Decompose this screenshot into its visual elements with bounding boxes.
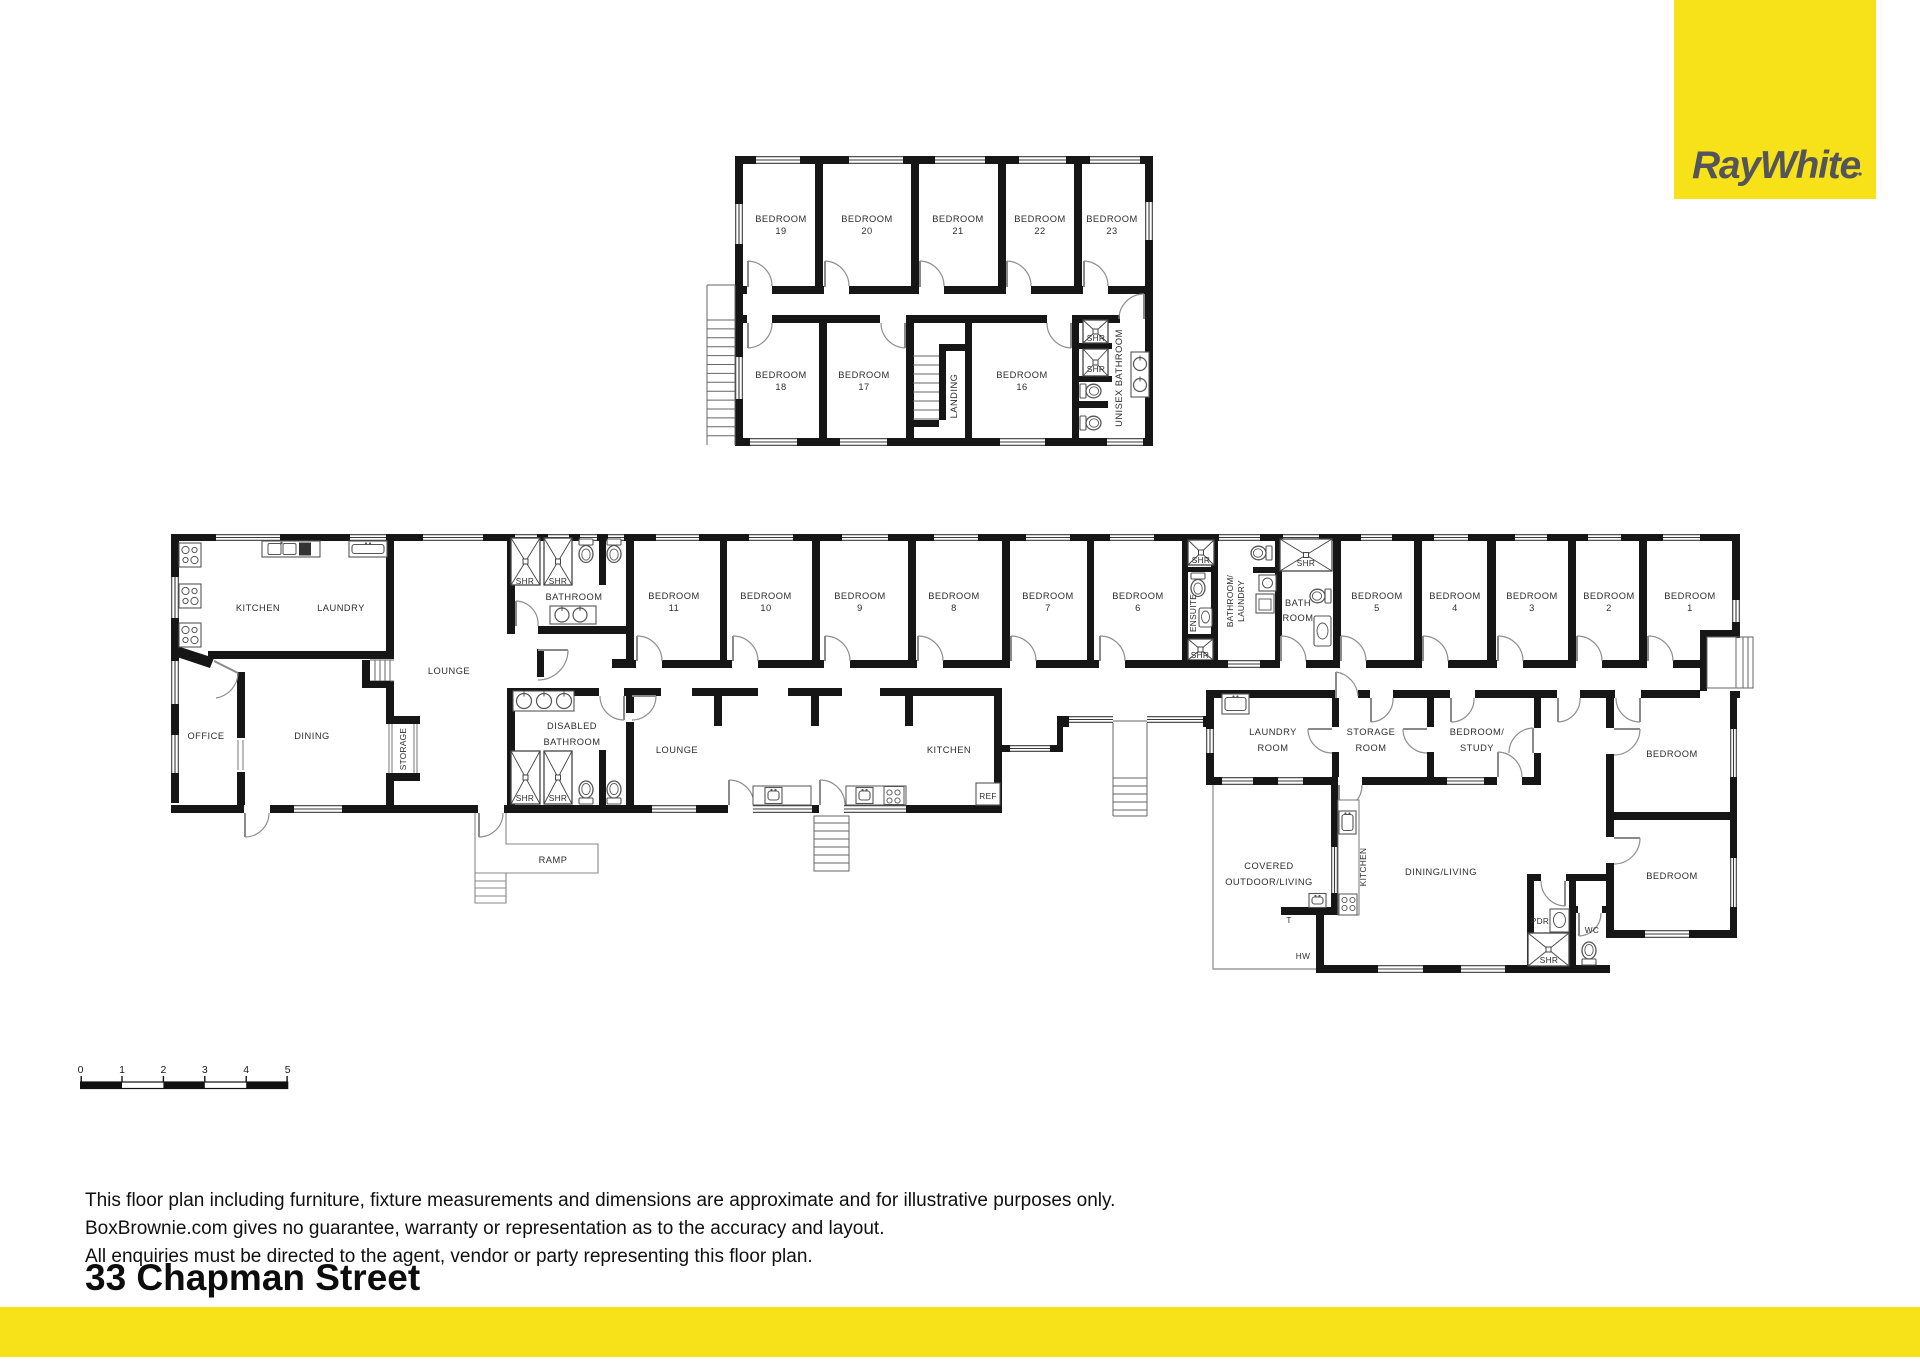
svg-text:18: 18 xyxy=(775,382,786,392)
svg-text:UNISEX BATHROOM: UNISEX BATHROOM xyxy=(1114,329,1124,427)
svg-text:BATHROOM/: BATHROOM/ xyxy=(1225,574,1235,627)
svg-text:SHR: SHR xyxy=(549,793,567,803)
svg-text:5: 5 xyxy=(285,1064,291,1076)
svg-text:KITCHEN: KITCHEN xyxy=(236,603,280,613)
svg-text:LOUNGE: LOUNGE xyxy=(428,666,470,676)
svg-text:21: 21 xyxy=(952,226,963,236)
svg-text:DINING/LIVING: DINING/LIVING xyxy=(1405,867,1477,877)
svg-text:WC: WC xyxy=(1585,925,1599,935)
svg-text:BEDROOM: BEDROOM xyxy=(1664,591,1716,601)
svg-text:SHR: SHR xyxy=(1191,650,1209,660)
svg-text:LAUNDRY: LAUNDRY xyxy=(317,603,365,613)
svg-text:ENSUITE: ENSUITE xyxy=(1188,594,1198,632)
svg-text:HW: HW xyxy=(1296,951,1310,961)
svg-text:BEDROOM: BEDROOM xyxy=(1086,214,1138,224)
svg-text:BEDROOM: BEDROOM xyxy=(1646,871,1698,881)
svg-text:SHR: SHR xyxy=(516,793,534,803)
svg-text:10: 10 xyxy=(760,603,771,613)
svg-text:RayWhite: RayWhite xyxy=(1692,144,1861,187)
svg-text:LOUNGE: LOUNGE xyxy=(656,745,698,755)
svg-text:23: 23 xyxy=(1106,226,1117,236)
svg-text:BEDROOM: BEDROOM xyxy=(834,591,886,601)
svg-text:SHR: SHR xyxy=(1087,333,1105,343)
svg-text:BEDROOM: BEDROOM xyxy=(1429,591,1481,601)
svg-text:BEDROOM: BEDROOM xyxy=(1351,591,1403,601)
svg-text:OFFICE: OFFICE xyxy=(187,731,224,741)
svg-text:SHR: SHR xyxy=(1192,555,1210,565)
svg-text:DISABLED: DISABLED xyxy=(547,721,597,731)
svg-text:SHR: SHR xyxy=(1087,364,1105,374)
svg-text:20: 20 xyxy=(861,226,872,236)
svg-text:SHR: SHR xyxy=(1540,955,1558,965)
svg-text:BEDROOM: BEDROOM xyxy=(1583,591,1635,601)
svg-text:ROOM: ROOM xyxy=(1356,743,1387,753)
svg-text:BEDROOM: BEDROOM xyxy=(996,370,1048,380)
svg-text:SHR: SHR xyxy=(1297,558,1315,568)
svg-text:RAMP: RAMP xyxy=(539,855,568,865)
svg-text:DINING: DINING xyxy=(294,731,330,741)
svg-text:ROOM: ROOM xyxy=(1283,613,1314,623)
svg-text:3: 3 xyxy=(1529,603,1535,613)
svg-text:BEDROOM: BEDROOM xyxy=(740,591,792,601)
svg-text:BEDROOM: BEDROOM xyxy=(755,370,807,380)
svg-text:PDR: PDR xyxy=(1531,916,1549,926)
svg-text:9: 9 xyxy=(857,603,863,613)
svg-text:LANDING: LANDING xyxy=(949,374,959,419)
svg-text:STORAGE: STORAGE xyxy=(398,728,408,771)
svg-text:BEDROOM: BEDROOM xyxy=(1014,214,1066,224)
svg-text:5: 5 xyxy=(1374,603,1380,613)
svg-text:3: 3 xyxy=(202,1064,208,1076)
svg-text:REF: REF xyxy=(979,791,997,801)
svg-text:BEDROOM: BEDROOM xyxy=(648,591,700,601)
svg-text:7: 7 xyxy=(1045,603,1051,613)
svg-text:LAUNDRY: LAUNDRY xyxy=(1249,727,1297,737)
svg-text:BoxBrownie.com gives no guaran: BoxBrownie.com gives no guarantee, warra… xyxy=(85,1218,885,1239)
svg-text:8: 8 xyxy=(951,603,957,613)
svg-text:SHR: SHR xyxy=(549,576,567,586)
svg-text:OUTDOOR/LIVING: OUTDOOR/LIVING xyxy=(1225,877,1313,887)
svg-text:BATHROOM: BATHROOM xyxy=(543,737,600,747)
svg-text:SHR: SHR xyxy=(516,576,534,586)
svg-text:BEDROOM: BEDROOM xyxy=(1112,591,1164,601)
svg-text:BATH: BATH xyxy=(1285,598,1311,608)
svg-text:6: 6 xyxy=(1135,603,1141,613)
svg-text:BEDROOM/: BEDROOM/ xyxy=(1450,727,1505,737)
svg-text:BEDROOM: BEDROOM xyxy=(928,591,980,601)
svg-text:19: 19 xyxy=(775,226,786,236)
svg-text:This floor plan including furn: This floor plan including furniture, fix… xyxy=(85,1190,1115,1211)
svg-text:11: 11 xyxy=(669,603,680,613)
svg-text:2: 2 xyxy=(160,1064,166,1076)
svg-text:4: 4 xyxy=(243,1064,249,1076)
svg-text:33 Chapman Street: 33 Chapman Street xyxy=(85,1257,420,1298)
svg-text:BEDROOM: BEDROOM xyxy=(755,214,807,224)
svg-text:STUDY: STUDY xyxy=(1460,743,1494,753)
svg-text:BEDROOM: BEDROOM xyxy=(932,214,984,224)
svg-text:BEDROOM: BEDROOM xyxy=(838,370,890,380)
svg-text:1: 1 xyxy=(1687,603,1693,613)
svg-text:1: 1 xyxy=(119,1064,125,1076)
svg-text:T: T xyxy=(1286,915,1291,925)
svg-text:ROOM: ROOM xyxy=(1258,743,1289,753)
svg-text:LAUNDRY: LAUNDRY xyxy=(1236,580,1246,622)
svg-text:COVERED: COVERED xyxy=(1244,861,1293,871)
svg-text:16: 16 xyxy=(1016,382,1027,392)
svg-text:BEDROOM: BEDROOM xyxy=(1506,591,1558,601)
svg-text:17: 17 xyxy=(858,382,869,392)
svg-text:STORAGE: STORAGE xyxy=(1347,727,1396,737)
svg-text:BEDROOM: BEDROOM xyxy=(1022,591,1074,601)
svg-text:BEDROOM: BEDROOM xyxy=(841,214,893,224)
svg-text:BEDROOM: BEDROOM xyxy=(1646,749,1698,759)
svg-text:KITCHEN: KITCHEN xyxy=(1358,848,1368,887)
svg-text:0: 0 xyxy=(78,1064,84,1076)
svg-text:22: 22 xyxy=(1034,226,1045,236)
svg-text:KITCHEN: KITCHEN xyxy=(927,745,971,755)
svg-text:2: 2 xyxy=(1606,603,1612,613)
svg-text:4: 4 xyxy=(1452,603,1458,613)
svg-text:BATHROOM: BATHROOM xyxy=(545,592,602,602)
